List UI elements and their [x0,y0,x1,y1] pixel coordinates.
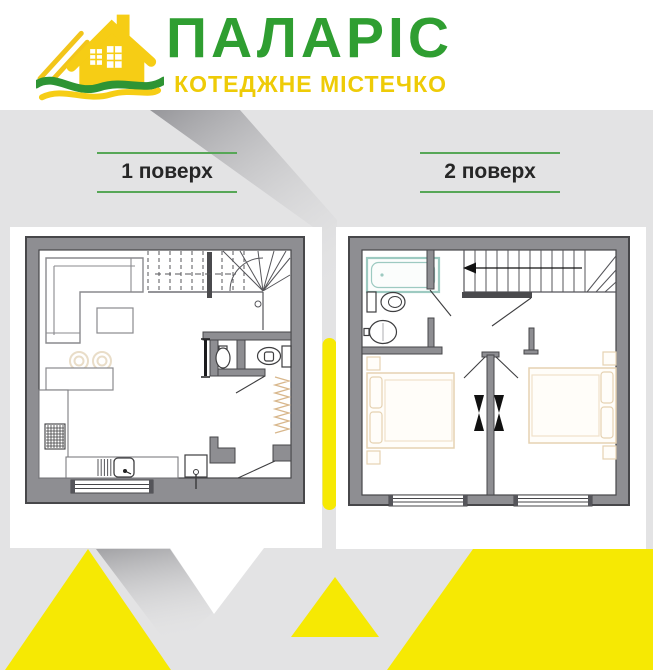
brand-tagline: КОТЕДЖНЕ МІСТЕЧКО [166,71,453,98]
toilet-icon [367,292,405,312]
yellow-triangle-middle [291,577,379,637]
window-left [389,495,467,506]
floor-plan-2 [344,230,636,512]
nightstand-icon [367,451,380,464]
yellow-corner-right [387,549,653,670]
nightstand-icon [603,446,616,459]
coffee-table-icon [97,308,133,333]
bed-icon-right [529,352,616,459]
floor-2-label: 2 поверх [420,152,560,193]
flyer: ПАЛАРІС КОТЕДЖНЕ МІСТЕЧКО 1 поверх 2 пов… [0,0,653,670]
logo-window-small [90,49,102,65]
stove-icon [45,424,65,449]
brand-logo: ПАЛАРІС КОТЕДЖНЕ МІСТЕЧКО [36,4,453,104]
nightstand-icon [603,352,616,365]
window-right [514,495,592,506]
floor-plan-1 [18,230,310,510]
bed-icon-left [367,357,454,464]
house-logo-icon [36,4,164,104]
floor-plan-2-card [336,227,646,549]
header: ПАЛАРІС КОТЕДЖНЕ МІСТЕЧКО [0,0,653,110]
floor-1-label: 1 поверх [97,152,237,193]
dining-table-icon [46,368,113,390]
nightstand-icon [367,357,380,370]
window [71,480,153,493]
brand-name: ПАЛАРІС [166,10,453,67]
logo-window-large [107,46,122,68]
logo-text: ПАЛАРІС КОТЕДЖНЕ МІСТЕЧКО [166,4,453,98]
floor-plan-1-card [10,227,322,548]
divider-stripe [323,338,337,510]
